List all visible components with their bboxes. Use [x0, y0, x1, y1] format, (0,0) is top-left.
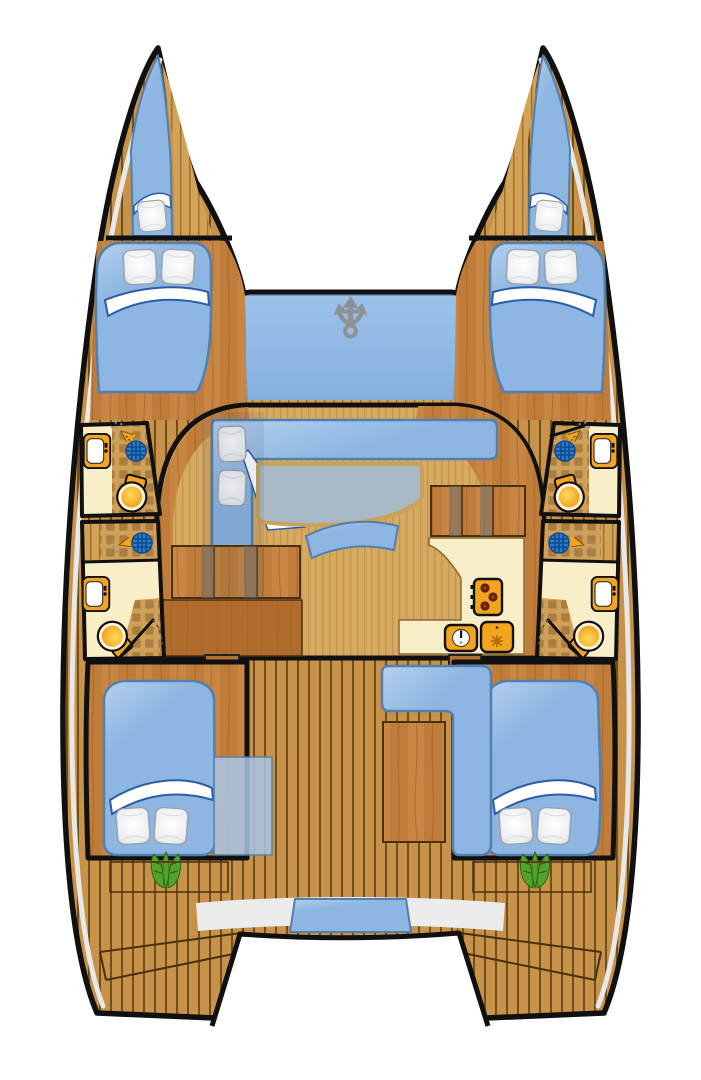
- port-forward-cabin: [90, 241, 247, 420]
- starboard-forward-bathroom: [541, 419, 620, 516]
- port-aft-bathroom: [82, 521, 164, 662]
- port-forward-bathroom: [81, 419, 160, 516]
- pillow: [499, 807, 534, 845]
- shower-drain-icon: [126, 441, 146, 461]
- plant-icon: [151, 852, 180, 888]
- pillow: [544, 249, 578, 285]
- bathroom-sink-icon: [592, 577, 619, 611]
- pillow: [154, 807, 189, 845]
- starboard-stairs: [431, 486, 525, 536]
- shower-drain-icon: [549, 533, 569, 553]
- stove-icon: [471, 579, 503, 615]
- catamaran-floor-plan-page: [0, 0, 701, 1080]
- pillow: [161, 249, 195, 285]
- starboard-forward-cabin: [454, 241, 611, 420]
- stern-cutout: [212, 933, 488, 1026]
- roof-hatch-overlay: [202, 412, 264, 600]
- trampoline: [234, 292, 467, 402]
- bathroom-sink-icon: [83, 577, 110, 611]
- port-aft-cabin: [86, 662, 272, 858]
- catamaran-floor-plan: [0, 0, 701, 1080]
- bathroom-sink-icon: [591, 434, 618, 468]
- shower-drain-icon: [132, 533, 152, 553]
- shower-drain-icon: [555, 441, 575, 461]
- aft-bench-cushion: [290, 899, 411, 932]
- pillow: [137, 200, 167, 233]
- salon: [157, 405, 544, 658]
- galley-sink-icon: [445, 625, 477, 651]
- cockpit-table: [383, 722, 445, 842]
- port-companionway: [163, 600, 302, 656]
- pillow: [123, 249, 157, 285]
- pillow: [534, 200, 564, 233]
- bathroom-sink-icon: [84, 434, 111, 468]
- plant-icon: [520, 852, 549, 888]
- starboard-aft-bathroom: [537, 521, 619, 662]
- icebox-icon: [481, 622, 513, 652]
- pillow: [506, 249, 540, 285]
- pillow: [116, 807, 151, 845]
- aft-bench: [196, 897, 505, 932]
- berth-extension: [214, 757, 272, 855]
- pillow: [537, 807, 572, 845]
